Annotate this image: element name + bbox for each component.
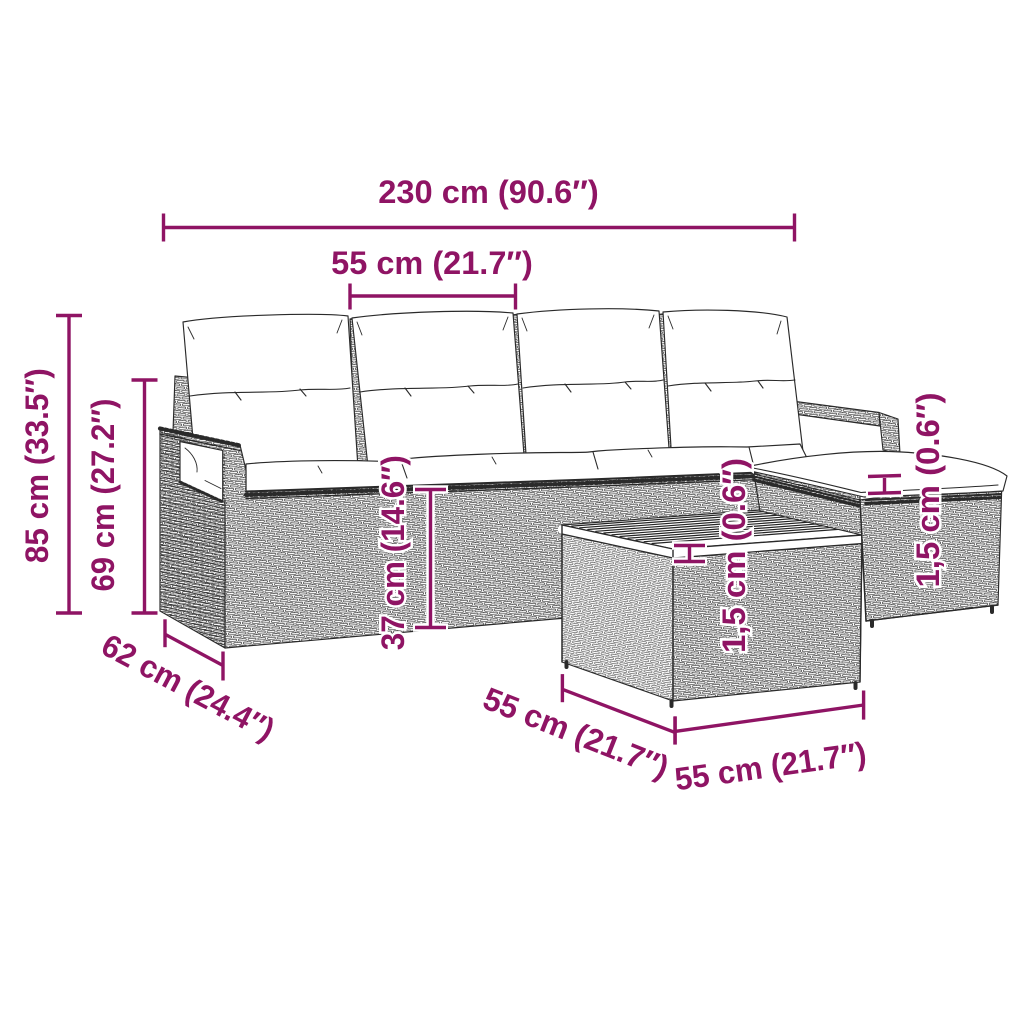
- svg-text:85 cm (33.5″): 85 cm (33.5″): [19, 368, 55, 563]
- svg-text:1,5 cm (0.6″): 1,5 cm (0.6″): [910, 393, 946, 588]
- svg-text:55 cm (21.7″): 55 cm (21.7″): [331, 245, 533, 281]
- svg-text:230 cm (90.6″): 230 cm (90.6″): [378, 174, 599, 210]
- svg-text:69 cm (27.2″): 69 cm (27.2″): [85, 399, 121, 592]
- svg-text:1,5 cm (0.6″): 1,5 cm (0.6″): [716, 458, 752, 653]
- svg-text:37 cm (14.6″): 37 cm (14.6″): [375, 455, 411, 650]
